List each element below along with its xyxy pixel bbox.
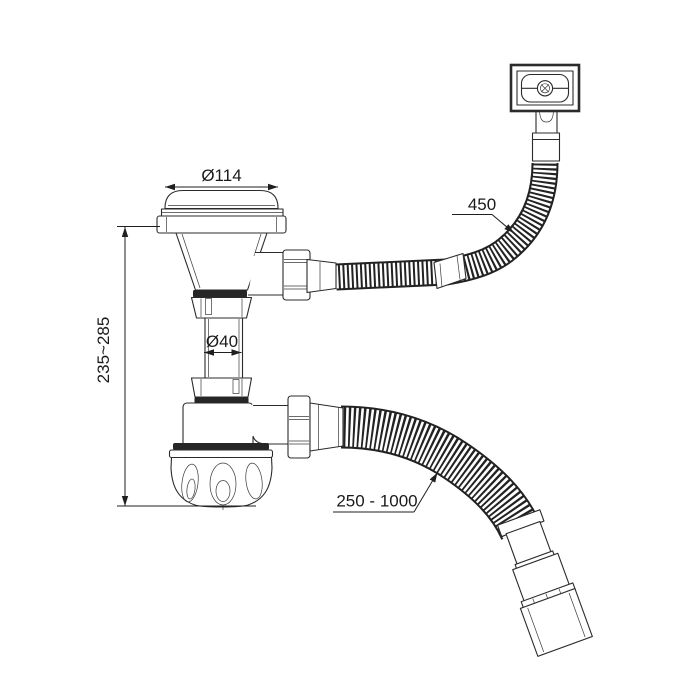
overflow-cuff bbox=[533, 133, 560, 161]
upper-nut bbox=[192, 298, 252, 319]
gasket-upper bbox=[193, 290, 247, 298]
cup-lip bbox=[170, 450, 273, 458]
technical-drawing: Ø114 Ø40 235~285 450 250 - 1000 bbox=[0, 0, 700, 700]
dim-pipe-diameter: Ø40 bbox=[204, 332, 242, 353]
drain-kit-diagram: Ø114 Ø40 235~285 450 250 - 1000 bbox=[0, 0, 700, 700]
cap-diameter-label: Ø114 bbox=[201, 166, 241, 185]
outlet-end-fitting bbox=[491, 508, 592, 657]
overflow-cover bbox=[511, 65, 579, 161]
overflow-hose bbox=[336, 163, 545, 289]
overflow-hose-length-label: 450 bbox=[468, 195, 496, 214]
cup-seal-ring bbox=[173, 443, 269, 450]
label-overflow-hose-length: 450 bbox=[452, 195, 514, 233]
pipe-diameter-label: Ø40 bbox=[206, 332, 238, 351]
siphon-cup bbox=[170, 443, 273, 510]
siphon-housing bbox=[183, 403, 253, 448]
overflow-arm-nut bbox=[283, 250, 310, 300]
height-range-label: 235~285 bbox=[94, 317, 113, 384]
hose-sleeve bbox=[434, 254, 466, 289]
dim-cap-diameter: Ø114 bbox=[165, 166, 278, 187]
outlet-hose-length-label: 250 - 1000 bbox=[336, 492, 417, 511]
flange-ring bbox=[157, 216, 286, 233]
outlet-nut bbox=[288, 396, 310, 458]
outlet-hose bbox=[341, 427, 521, 531]
lower-nut bbox=[192, 378, 252, 397]
overflow-arm-cuff bbox=[307, 260, 336, 293]
label-outlet-hose-length: 250 - 1000 bbox=[333, 473, 438, 513]
strainer-cap bbox=[157, 191, 286, 234]
outlet-cuff bbox=[310, 403, 343, 451]
drain-body-upper bbox=[176, 233, 336, 318]
